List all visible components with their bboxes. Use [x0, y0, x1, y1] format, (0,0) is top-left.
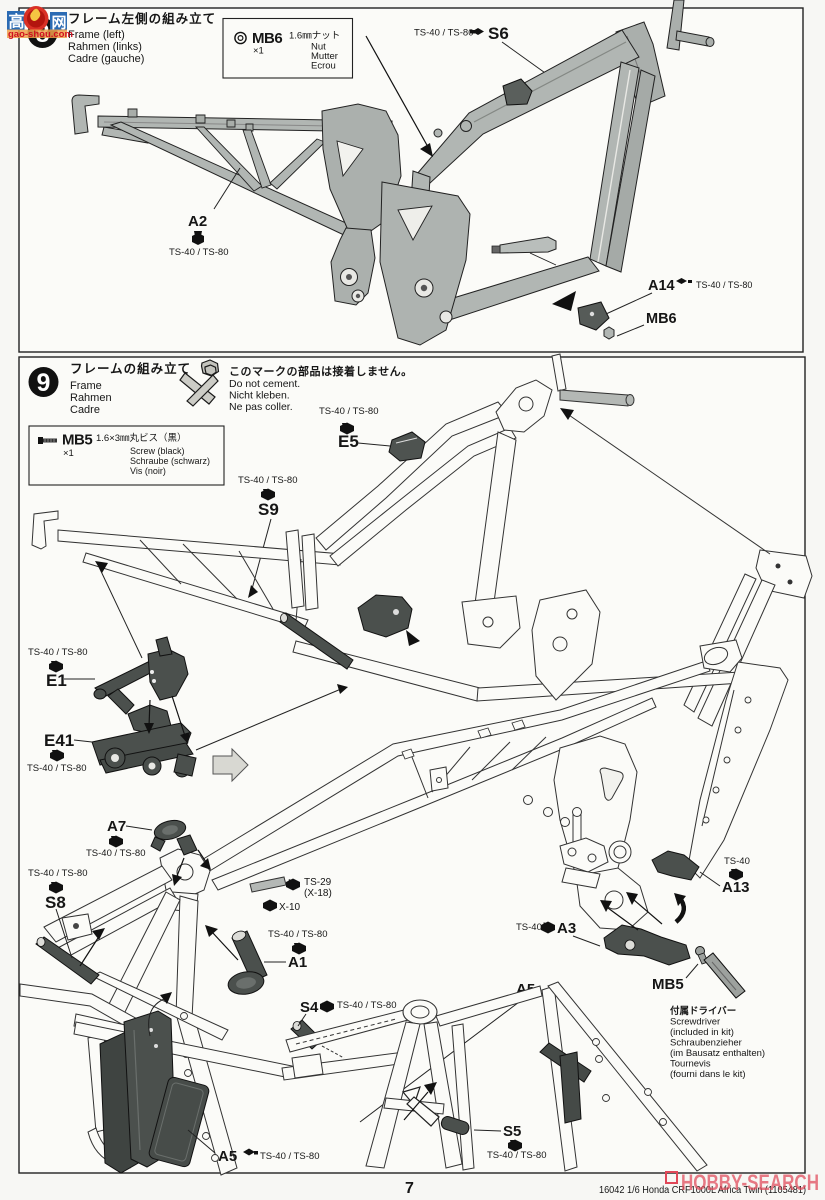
svg-text:S9: S9 [258, 500, 279, 519]
svg-text:1.6×3㎜丸ビス（黒）: 1.6×3㎜丸ビス（黒） [96, 432, 187, 444]
svg-text:Schraube (schwarz): Schraube (schwarz) [130, 456, 210, 466]
svg-text:7: 7 [405, 1180, 414, 1197]
svg-text:TS-40 / TS-80: TS-40 / TS-80 [414, 28, 474, 39]
svg-text:HOBBY-SEARCH: HOBBY-SEARCH [681, 1170, 819, 1195]
svg-text:TS-40 / TS-80: TS-40 / TS-80 [487, 1150, 547, 1161]
svg-text:gao-shou.com: gao-shou.com [8, 29, 73, 40]
svg-text:TS-40 / TS-80: TS-40 / TS-80 [28, 868, 88, 879]
svg-text:TS-40 / TS-80: TS-40 / TS-80 [238, 475, 298, 486]
svg-text:Rahmen: Rahmen [70, 392, 112, 404]
svg-text:9: 9 [37, 369, 51, 397]
svg-text:A1: A1 [288, 954, 307, 971]
svg-text:Cadre (gauche): Cadre (gauche) [68, 53, 144, 65]
svg-text:Rahmen (links): Rahmen (links) [68, 41, 142, 53]
svg-text:Frame (left): Frame (left) [68, 29, 125, 41]
svg-text:フレームの組み立て: フレームの組み立て [70, 361, 191, 376]
svg-text:A5: A5 [218, 1148, 237, 1165]
svg-text:S4: S4 [300, 999, 319, 1016]
svg-text:TS-29: TS-29 [304, 877, 332, 888]
svg-text:Do not cement.: Do not cement. [229, 378, 300, 390]
svg-text:X-10: X-10 [279, 902, 301, 913]
svg-text:Ne pas coller.: Ne pas coller. [229, 401, 293, 413]
svg-text:E41: E41 [44, 731, 74, 750]
svg-text:Nicht kleben.: Nicht kleben. [229, 390, 290, 402]
svg-text:×1: ×1 [253, 46, 264, 57]
svg-text:TS-40 / TS-80: TS-40 / TS-80 [27, 763, 87, 774]
svg-text:このマークの部品は接着しません。: このマークの部品は接着しません。 [229, 364, 413, 378]
svg-text:(fourni dans le kit): (fourni dans le kit) [670, 1069, 746, 1080]
svg-text:付属ドライバー: 付属ドライバー [670, 1005, 736, 1017]
svg-text:MB5: MB5 [62, 432, 92, 449]
svg-text:TS-40 / TS-80: TS-40 / TS-80 [696, 280, 752, 290]
svg-text:E1: E1 [46, 671, 67, 690]
svg-text:S6: S6 [488, 24, 509, 43]
svg-text:1.6㎜ナット: 1.6㎜ナット [289, 31, 340, 42]
svg-text:TS-40 / TS-80: TS-40 / TS-80 [86, 848, 146, 859]
svg-text:フレーム左側の組み立て: フレーム左側の組み立て [68, 11, 216, 26]
svg-text:Vis (noir): Vis (noir) [130, 466, 166, 476]
svg-text:A7: A7 [107, 818, 126, 835]
svg-text:A3: A3 [557, 920, 576, 937]
svg-text:TS-40: TS-40 [724, 856, 750, 867]
svg-text:Schraubenzieher: Schraubenzieher [670, 1038, 742, 1049]
svg-text:TS-40 / TS-80: TS-40 / TS-80 [28, 647, 88, 658]
svg-text:S8: S8 [45, 893, 66, 912]
svg-text:Tournevis: Tournevis [670, 1059, 711, 1070]
svg-text:(included in kit): (included in kit) [670, 1027, 734, 1038]
svg-text:×1: ×1 [63, 448, 74, 459]
svg-text:TS-40 / TS-80: TS-40 / TS-80 [337, 1000, 397, 1011]
svg-text:Screwdriver: Screwdriver [670, 1017, 720, 1028]
svg-text:TS-40 / TS-80: TS-40 / TS-80 [319, 406, 379, 417]
svg-text:MB6: MB6 [252, 30, 282, 47]
svg-text:TS-40 / TS-80: TS-40 / TS-80 [169, 247, 229, 258]
svg-text:(im Bausatz enthalten): (im Bausatz enthalten) [670, 1048, 765, 1059]
svg-text:Frame: Frame [70, 380, 102, 392]
svg-text:(X-18): (X-18) [304, 888, 332, 899]
svg-text:MB6: MB6 [646, 311, 677, 327]
svg-text:TS-40: TS-40 [516, 922, 542, 933]
svg-text:E5: E5 [338, 432, 359, 451]
svg-text:Cadre: Cadre [70, 404, 100, 416]
svg-text:TS-40 / TS-80: TS-40 / TS-80 [260, 1151, 320, 1162]
svg-text:Ecrou: Ecrou [311, 61, 336, 72]
svg-text:A2: A2 [188, 213, 207, 230]
svg-text:A13: A13 [722, 879, 750, 896]
svg-text:A14: A14 [648, 278, 675, 294]
svg-text:TS-40 / TS-80: TS-40 / TS-80 [268, 929, 328, 940]
svg-text:MB5: MB5 [652, 976, 684, 993]
svg-text:S5: S5 [503, 1123, 521, 1140]
svg-text:Screw (black): Screw (black) [130, 446, 185, 456]
